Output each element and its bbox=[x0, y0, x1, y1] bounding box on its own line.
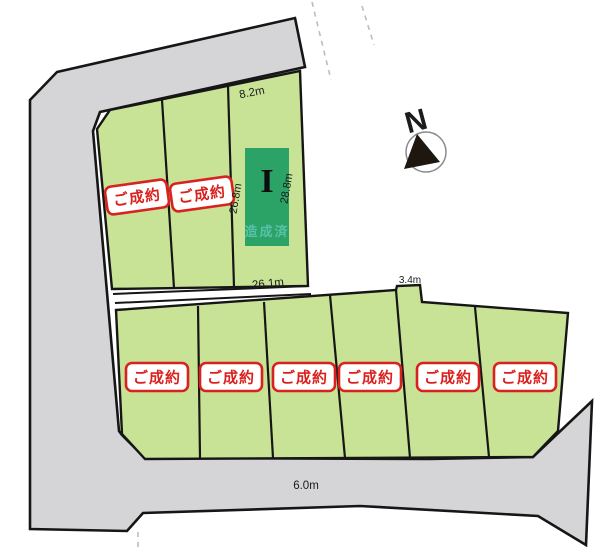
sold-badge-label: ご成約 bbox=[346, 369, 394, 387]
road-continuation-dash-2 bbox=[362, 6, 374, 45]
sold-badge: ご成約 bbox=[339, 363, 401, 391]
sold-badge-label: ご成約 bbox=[207, 369, 255, 387]
sold-badge: ご成約 bbox=[273, 363, 335, 391]
dim-upper-bottom-width: 26.1m bbox=[251, 276, 284, 291]
sold-badge: ご成約 bbox=[417, 363, 479, 391]
sold-badge-label: ご成約 bbox=[501, 369, 549, 387]
road-continuation-dash-1 bbox=[312, 2, 331, 80]
lot-i-status: 造成済 bbox=[244, 224, 289, 239]
sold-badge-label: ご成約 bbox=[280, 369, 328, 387]
lot-map: I 造成済 ご成約 ご成約 ご成約 ご成約 ご成約 ご成約 ご成約 bbox=[0, 0, 600, 552]
sold-badge: ご成約 bbox=[494, 363, 556, 391]
sold-badge: ご成約 bbox=[126, 363, 188, 391]
sold-badge-label: ご成約 bbox=[133, 369, 181, 387]
lot-map-canvas: I 造成済 ご成約 ご成約 ご成約 ご成約 ご成約 ご成約 ご成約 bbox=[0, 0, 600, 552]
sold-badge-label: ご成約 bbox=[424, 369, 472, 387]
lot-i-number: I bbox=[260, 163, 273, 200]
dim-road-width: 6.0m bbox=[293, 480, 319, 492]
dim-lower-notch-width: 3.4m bbox=[399, 275, 421, 286]
north-compass: N bbox=[401, 103, 446, 172]
sold-badge: ご成約 bbox=[200, 363, 262, 391]
